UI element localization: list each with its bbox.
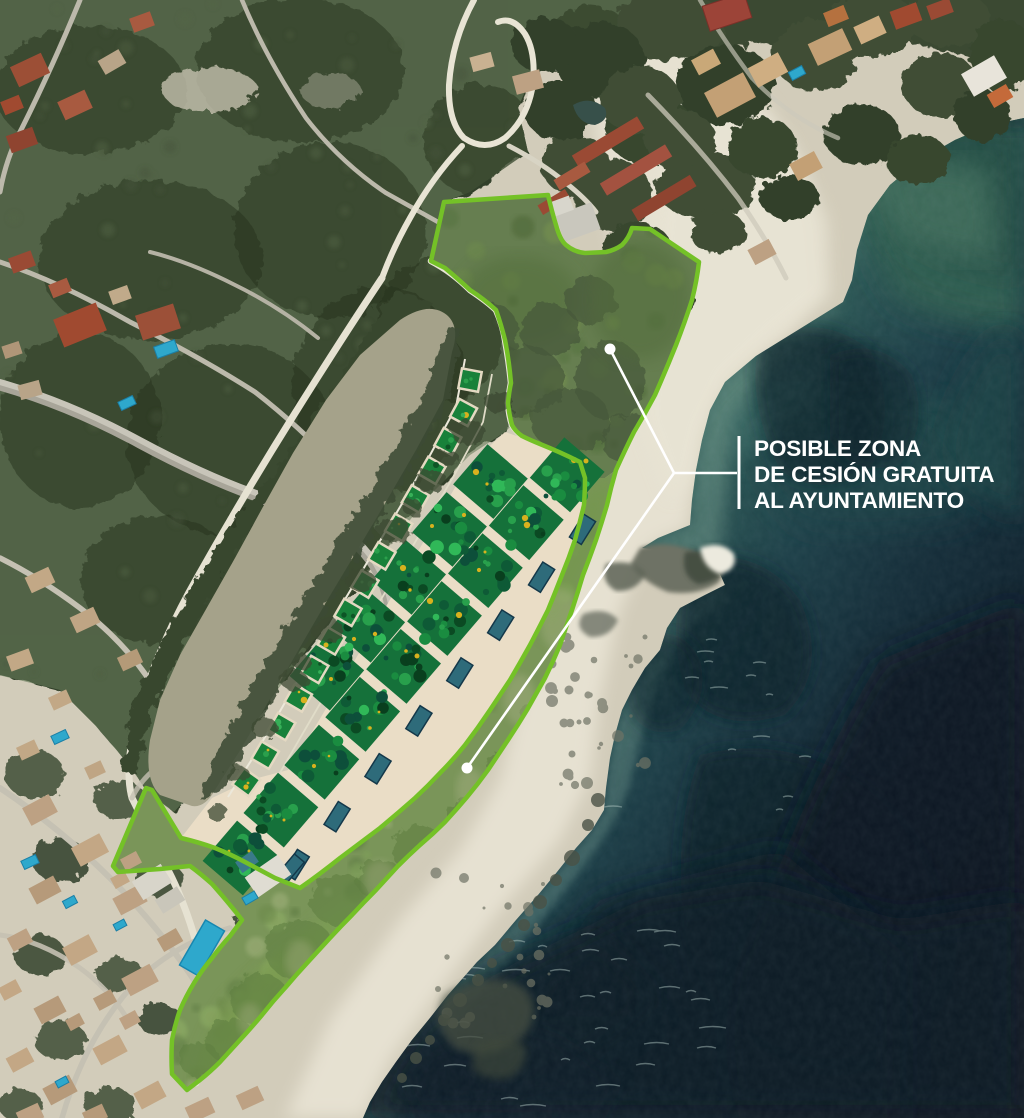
svg-text:POSIBLE ZONA: POSIBLE ZONA bbox=[754, 436, 921, 461]
svg-text:AL AYUNTAMIENTO: AL AYUNTAMIENTO bbox=[754, 488, 964, 513]
svg-text:DE CESIÓN GRATUITA: DE CESIÓN GRATUITA bbox=[754, 462, 994, 487]
